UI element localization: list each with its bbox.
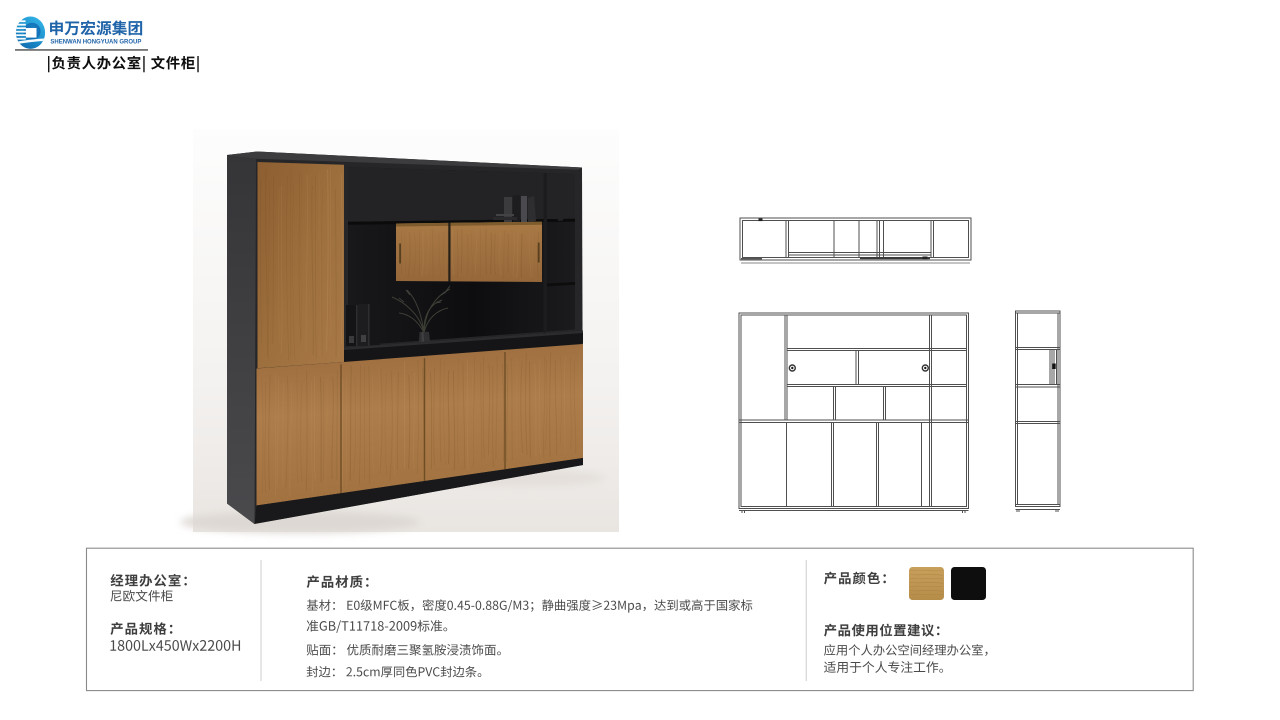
svg-text:SHENWAN HONGYUAN GROUP: SHENWAN HONGYUAN GROUP — [50, 39, 141, 45]
